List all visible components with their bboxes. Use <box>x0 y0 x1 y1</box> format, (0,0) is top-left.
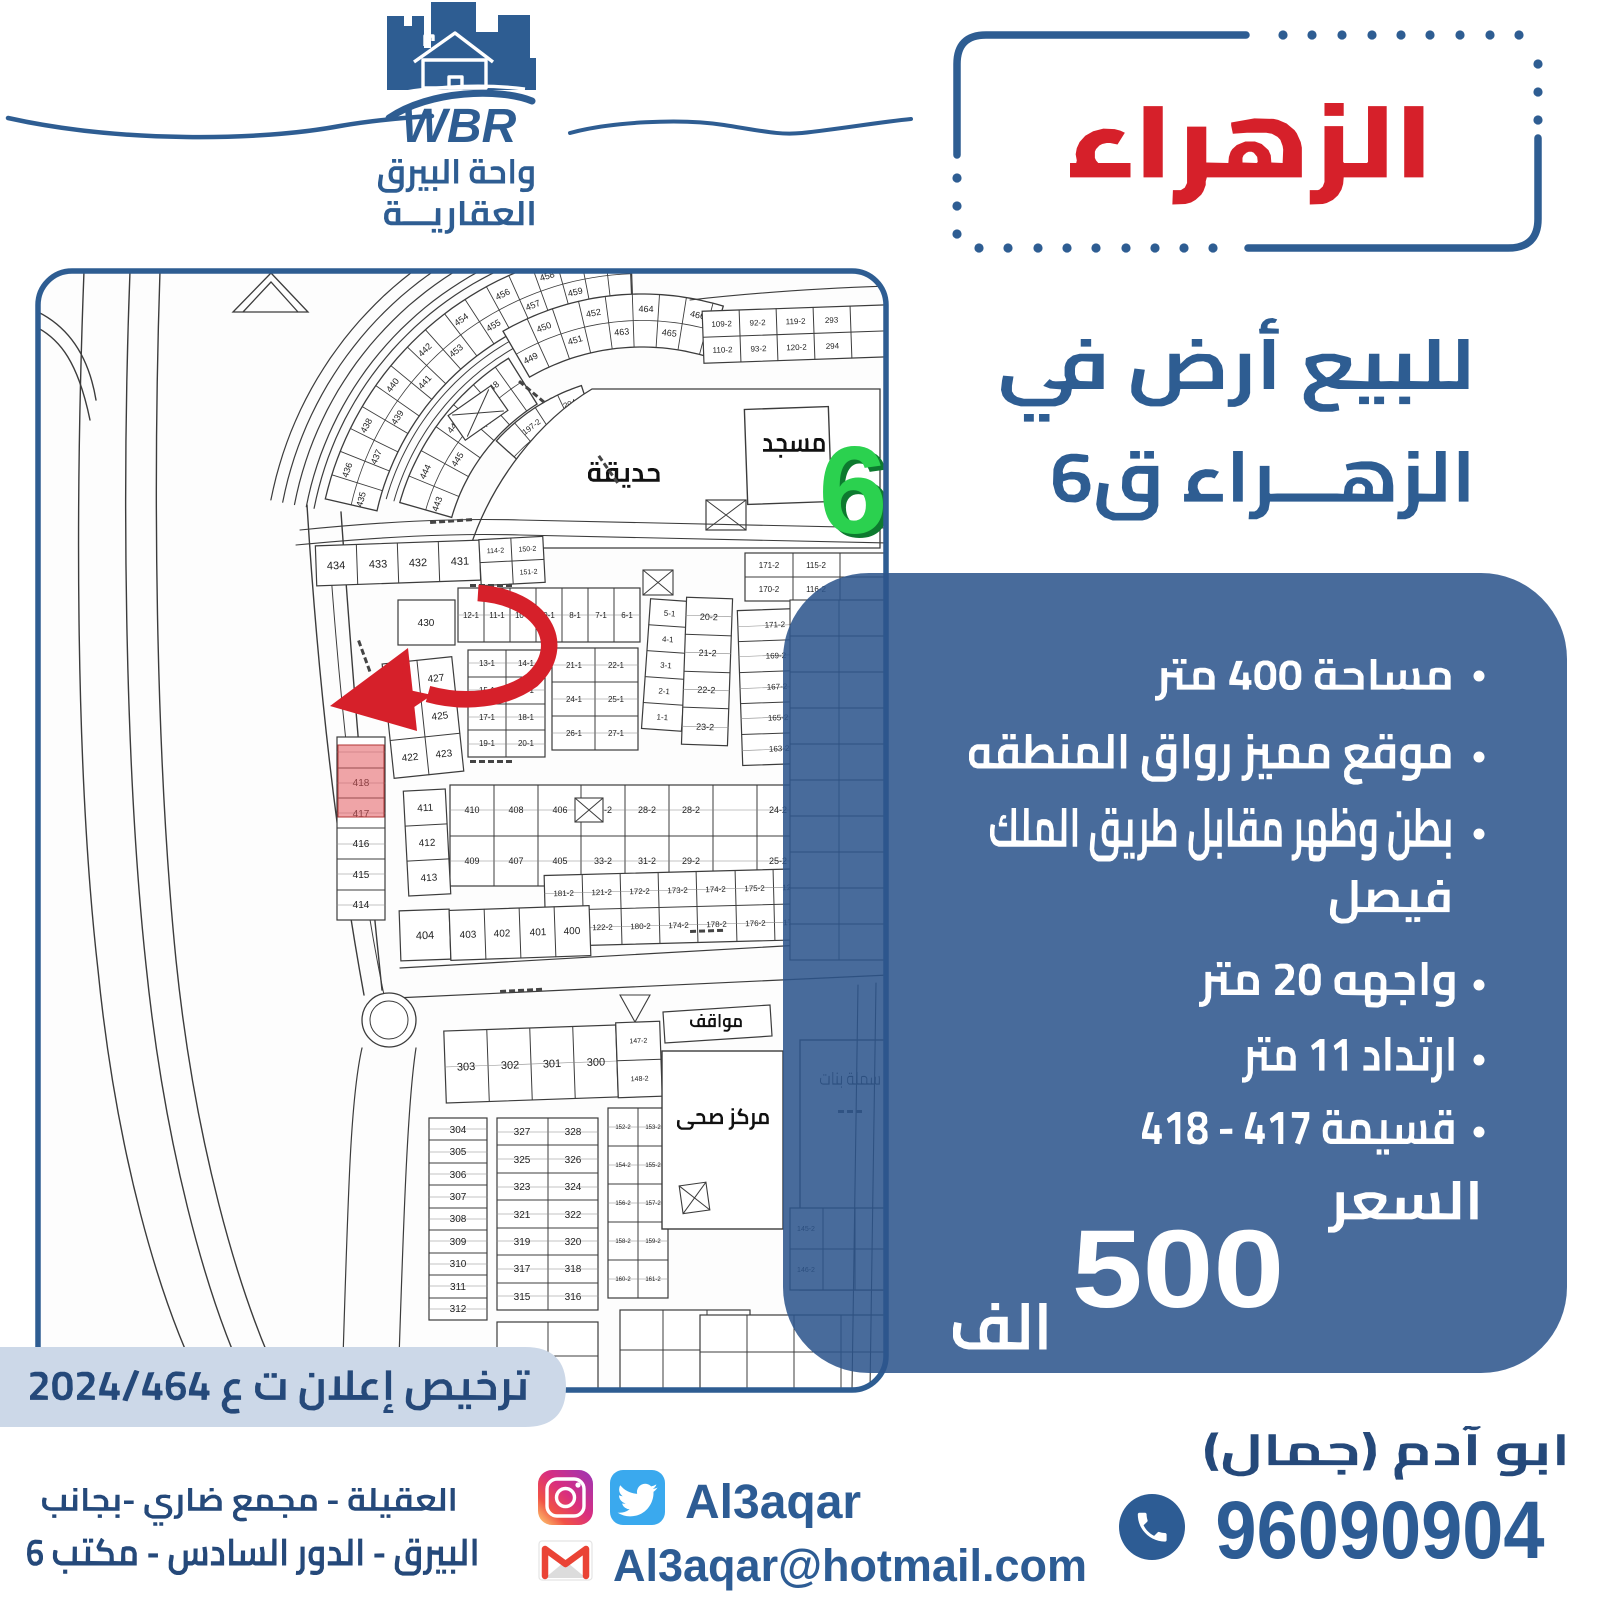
svg-text:8-1: 8-1 <box>569 611 581 620</box>
svg-text:325: 325 <box>514 1155 531 1166</box>
svg-text:148-2: 148-2 <box>631 1076 649 1084</box>
svg-text:316: 316 <box>565 1292 582 1303</box>
svg-text:11-1: 11-1 <box>489 611 505 620</box>
svg-text:14-1: 14-1 <box>518 659 535 668</box>
svg-text:161-2: 161-2 <box>645 1277 661 1283</box>
svg-text:323: 323 <box>514 1182 531 1193</box>
svg-text:7-1: 7-1 <box>595 611 607 620</box>
svg-text:328: 328 <box>565 1127 582 1138</box>
svg-text:321: 321 <box>514 1210 531 1221</box>
svg-text:319: 319 <box>514 1237 531 1248</box>
svg-text:464: 464 <box>638 304 653 314</box>
svg-text:22-1: 22-1 <box>608 661 625 670</box>
svg-text:312: 312 <box>450 1304 467 1315</box>
svg-text:154-2: 154-2 <box>615 1163 631 1169</box>
svg-text:19-1: 19-1 <box>479 739 496 748</box>
svg-text:174-2: 174-2 <box>668 921 689 931</box>
svg-text:430: 430 <box>418 618 435 629</box>
svg-text:92-2: 92-2 <box>749 318 766 328</box>
svg-text:293: 293 <box>825 316 839 325</box>
svg-text:309: 309 <box>450 1237 467 1248</box>
svg-text:180-2: 180-2 <box>630 922 651 932</box>
svg-text:401: 401 <box>529 927 546 939</box>
svg-text:308: 308 <box>450 1214 467 1225</box>
svg-text:465: 465 <box>661 327 677 339</box>
svg-text:305: 305 <box>450 1147 467 1158</box>
svg-text:121-2: 121-2 <box>591 888 612 898</box>
svg-text:1-1: 1-1 <box>656 712 669 722</box>
svg-text:156-2: 156-2 <box>615 1201 631 1207</box>
svg-text:150-2: 150-2 <box>518 546 536 554</box>
svg-text:96090904: 96090904 <box>1215 1486 1544 1576</box>
svg-text:403: 403 <box>460 930 477 942</box>
svg-text:28-2: 28-2 <box>682 805 700 815</box>
svg-text:432: 432 <box>409 557 428 570</box>
svg-text:171-2: 171-2 <box>764 620 785 630</box>
svg-text:17-1: 17-1 <box>479 713 496 722</box>
svg-text:433: 433 <box>369 558 388 571</box>
svg-text:153-2: 153-2 <box>645 1125 661 1131</box>
svg-text:WBR: WBR <box>402 100 517 153</box>
svg-text:174-2: 174-2 <box>705 885 726 895</box>
svg-text:310: 310 <box>450 1259 467 1270</box>
svg-text:Al3aqar: Al3aqar <box>685 1476 861 1529</box>
svg-text:23-2: 23-2 <box>696 722 714 733</box>
svg-text:25-1: 25-1 <box>608 695 625 704</box>
svg-text:405: 405 <box>552 856 567 866</box>
svg-text:302: 302 <box>501 1059 520 1072</box>
svg-text:326: 326 <box>565 1155 582 1166</box>
svg-text:303: 303 <box>457 1061 476 1074</box>
svg-text:317: 317 <box>514 1264 531 1275</box>
svg-text:114-2: 114-2 <box>487 547 505 555</box>
svg-text:416: 416 <box>353 839 370 850</box>
svg-text:413: 413 <box>420 872 438 884</box>
svg-text:412: 412 <box>418 838 436 850</box>
svg-text:159-2: 159-2 <box>645 1239 661 1245</box>
svg-text:294: 294 <box>826 341 840 350</box>
svg-text:400: 400 <box>563 926 580 938</box>
svg-text:318: 318 <box>565 1264 582 1275</box>
svg-text:33-2: 33-2 <box>594 856 612 866</box>
svg-text:122-2: 122-2 <box>592 923 613 933</box>
svg-text:322: 322 <box>565 1210 582 1221</box>
svg-text:172-2: 172-2 <box>629 887 650 897</box>
svg-text:434: 434 <box>327 560 346 573</box>
svg-text:24-1: 24-1 <box>566 695 583 704</box>
svg-text:29-2: 29-2 <box>682 856 700 866</box>
svg-text:304: 304 <box>450 1125 467 1136</box>
svg-text:31-2: 31-2 <box>638 856 656 866</box>
svg-text:27-1: 27-1 <box>608 729 625 738</box>
svg-text:320: 320 <box>565 1237 582 1248</box>
svg-text:160-2: 160-2 <box>615 1277 631 1283</box>
svg-text:120-2: 120-2 <box>786 343 807 353</box>
svg-text:173-2: 173-2 <box>667 886 688 896</box>
svg-text:20-1: 20-1 <box>518 739 535 748</box>
svg-text:Al3aqar@hotmail.com: Al3aqar@hotmail.com <box>613 1540 1087 1591</box>
svg-text:315: 315 <box>514 1292 531 1303</box>
svg-text:311: 311 <box>450 1282 466 1293</box>
svg-text:415: 415 <box>353 870 370 881</box>
svg-text:151-2: 151-2 <box>520 569 538 577</box>
svg-text:431: 431 <box>451 556 470 569</box>
svg-text:21-1: 21-1 <box>566 661 583 670</box>
svg-text:20-2: 20-2 <box>700 612 718 623</box>
svg-text:170-2: 170-2 <box>759 585 780 594</box>
svg-text:5-1: 5-1 <box>664 609 677 619</box>
svg-text:12-1: 12-1 <box>463 611 480 620</box>
svg-text:26-1: 26-1 <box>566 729 583 738</box>
svg-text:13-1: 13-1 <box>479 659 496 668</box>
svg-text:301: 301 <box>543 1058 562 1071</box>
svg-text:178-2: 178-2 <box>706 920 727 930</box>
svg-text:22-2: 22-2 <box>697 685 715 696</box>
svg-text:402: 402 <box>493 928 510 940</box>
svg-text:181-2: 181-2 <box>553 889 574 899</box>
svg-text:409: 409 <box>464 856 479 866</box>
svg-text:119-2: 119-2 <box>785 317 806 327</box>
svg-text:408: 408 <box>508 805 523 815</box>
svg-text:28-2: 28-2 <box>638 805 656 815</box>
svg-text:158-2: 158-2 <box>615 1239 631 1245</box>
svg-text:324: 324 <box>565 1182 582 1193</box>
svg-text:300: 300 <box>587 1056 606 1069</box>
svg-text:404: 404 <box>416 930 435 943</box>
svg-text:411: 411 <box>417 803 434 815</box>
svg-text:147-2: 147-2 <box>629 1038 647 1046</box>
svg-text:500: 500 <box>1072 1208 1285 1331</box>
svg-text:427: 427 <box>427 673 445 686</box>
svg-text:171-2: 171-2 <box>759 561 780 570</box>
svg-text:307: 307 <box>450 1192 467 1203</box>
svg-text:407: 407 <box>508 856 523 866</box>
svg-text:423: 423 <box>435 748 453 761</box>
svg-text:93-2: 93-2 <box>750 344 767 354</box>
svg-text:157-2: 157-2 <box>645 1201 661 1207</box>
svg-text:406: 406 <box>552 805 567 815</box>
svg-text:3-1: 3-1 <box>660 661 673 671</box>
svg-text:463: 463 <box>614 326 630 337</box>
svg-text:110-2: 110-2 <box>712 345 733 355</box>
svg-text:6-1: 6-1 <box>621 611 633 620</box>
svg-text:2-1: 2-1 <box>658 687 671 697</box>
svg-text:109-2: 109-2 <box>711 319 732 329</box>
svg-text:152-2: 152-2 <box>615 1125 631 1131</box>
svg-text:6: 6 <box>819 422 888 560</box>
svg-text:18-1: 18-1 <box>518 713 535 722</box>
svg-text:327: 327 <box>514 1127 531 1138</box>
svg-text:176-2: 176-2 <box>745 919 766 929</box>
svg-text:21-2: 21-2 <box>698 648 716 659</box>
svg-text:4-1: 4-1 <box>662 635 675 645</box>
svg-text:175-2: 175-2 <box>744 884 765 894</box>
svg-text:422: 422 <box>401 752 419 765</box>
svg-text:306: 306 <box>450 1170 467 1181</box>
svg-text:414: 414 <box>353 900 370 911</box>
svg-text:410: 410 <box>464 805 479 815</box>
svg-text:155-2: 155-2 <box>645 1163 661 1169</box>
svg-text:425: 425 <box>431 710 449 723</box>
